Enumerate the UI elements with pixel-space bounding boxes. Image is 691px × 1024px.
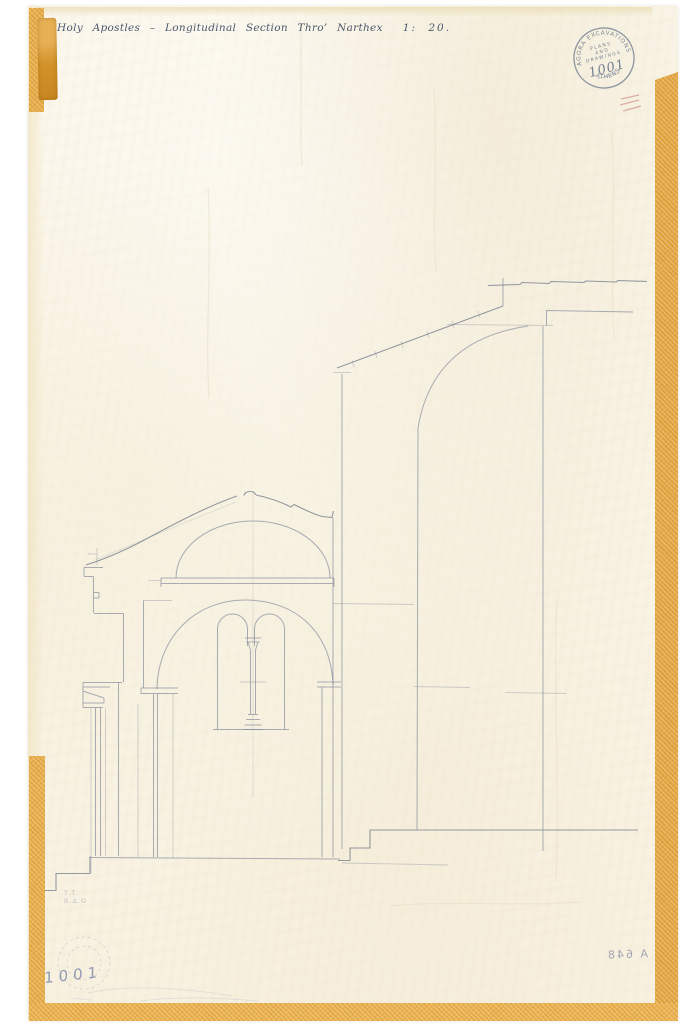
scale-notation: 1: 20. [403, 22, 451, 34]
title-inscription: Holy Apostles – Longitudinal Section Thr… [57, 22, 451, 34]
pencil-section-drawing [0, 0, 691, 1024]
tape-bottom-edge [29, 1003, 678, 1021]
tape-left-amber-patch [37, 18, 57, 100]
scanned-drawing-page: Holy Apostles – Longitudinal Section Thr… [0, 0, 691, 1024]
tape-left-bottom [29, 756, 45, 1010]
red-crayon-mark [620, 95, 641, 111]
tape-right-edge [655, 72, 678, 1016]
left-wall-section-lines [83, 568, 173, 874]
faint-note-line2: B.Δ.O [64, 898, 87, 906]
central-bay-section-lines [86, 491, 341, 857]
faint-pencil-note: T.T. B.Δ.O [64, 890, 87, 905]
negative-number-mirrored: A 648 [606, 947, 648, 961]
right-bay-section-lines [333, 278, 647, 851]
left-wall-cornice [83, 683, 122, 708]
floor-and-steps-lines [32, 830, 638, 891]
paper-creases [208, 20, 614, 906]
title-text: Holy Apostles – Longitudinal Section Thr… [57, 22, 383, 34]
